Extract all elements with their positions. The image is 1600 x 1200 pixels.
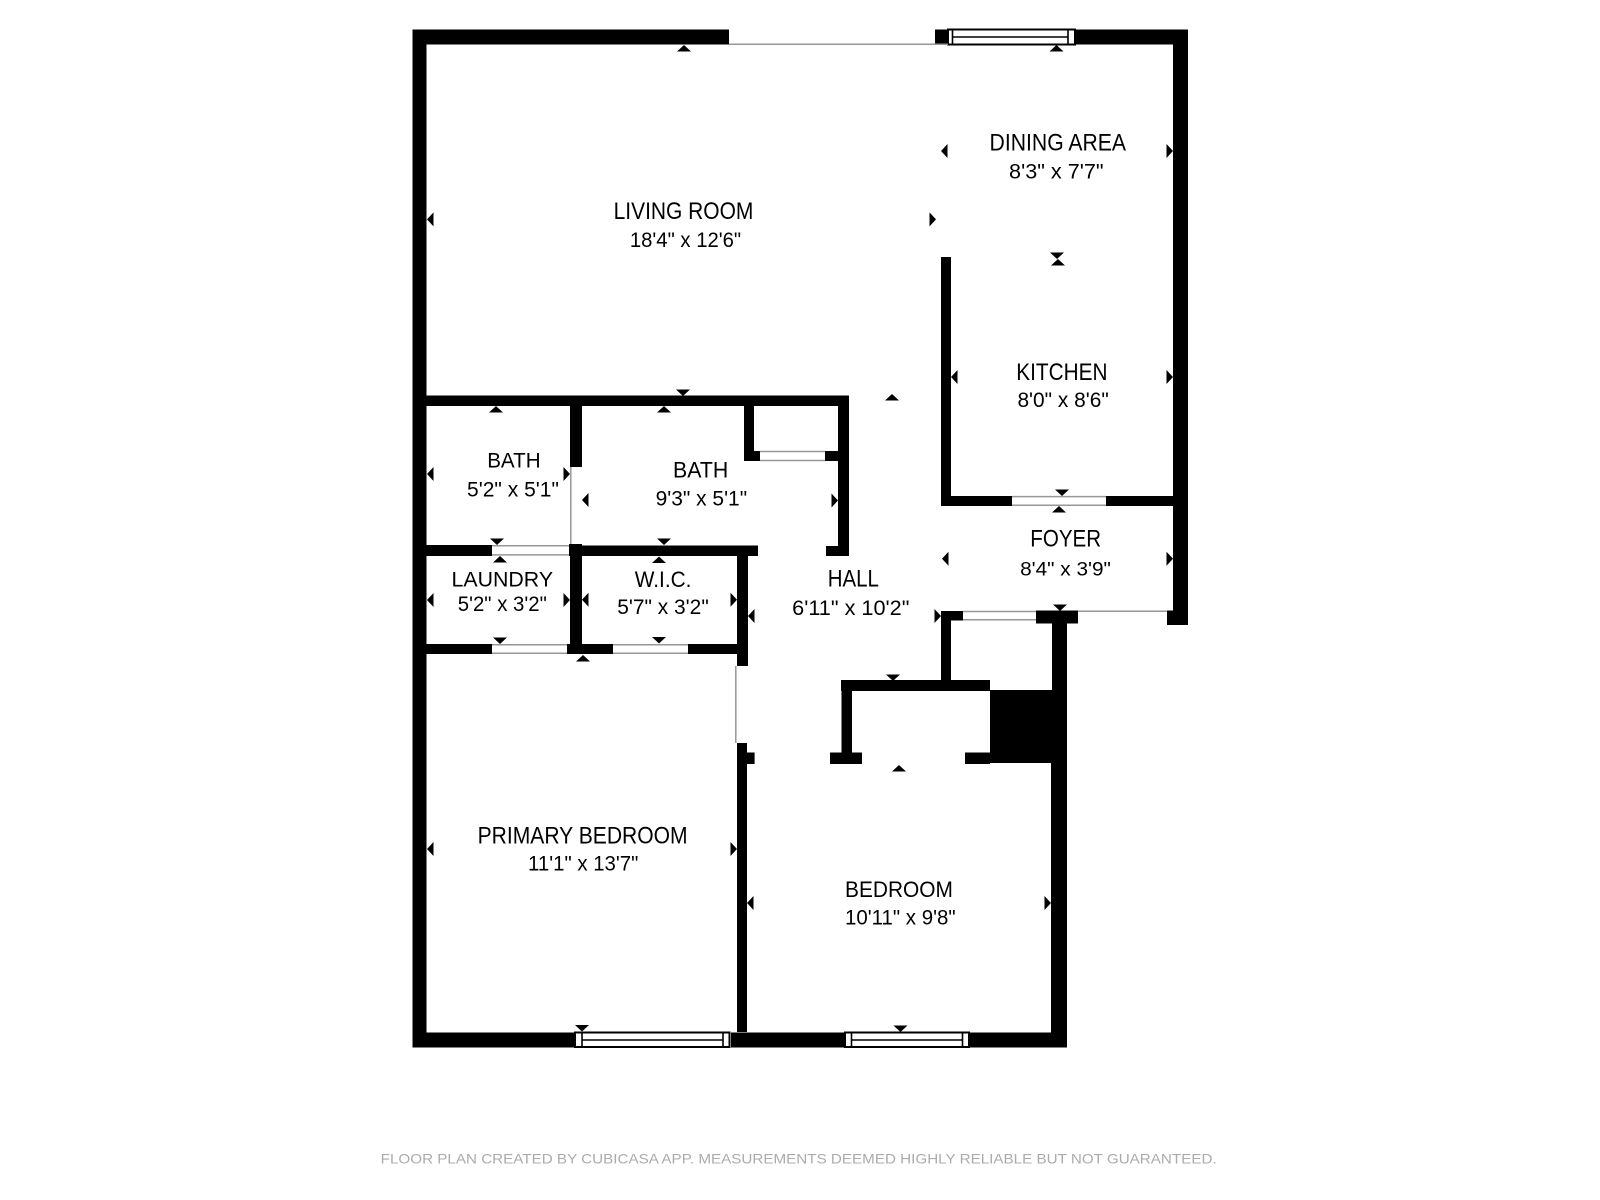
svg-text:18'4" x 12'6": 18'4" x 12'6" xyxy=(630,228,741,252)
svg-text:BATH: BATH xyxy=(487,450,540,473)
svg-text:PRIMARY BEDROOM: PRIMARY BEDROOM xyxy=(478,822,688,849)
svg-text:10'11" x 9'8": 10'11" x 9'8" xyxy=(845,906,956,929)
svg-text:HALL: HALL xyxy=(828,566,879,593)
svg-text:FOYER: FOYER xyxy=(1030,527,1101,553)
svg-text:FLOOR PLAN CREATED BY CUBICASA: FLOOR PLAN CREATED BY CUBICASA APP. MEAS… xyxy=(381,1151,1217,1167)
svg-text:BATH: BATH xyxy=(673,458,728,483)
svg-text:LAUNDRY: LAUNDRY xyxy=(452,568,554,591)
svg-text:5'2" x 5'1": 5'2" x 5'1" xyxy=(467,479,559,502)
svg-text:KITCHEN: KITCHEN xyxy=(1016,359,1107,386)
svg-text:6'11" x 10'2": 6'11" x 10'2" xyxy=(792,595,909,620)
svg-text:BEDROOM: BEDROOM xyxy=(845,877,953,902)
svg-text:DINING AREA: DINING AREA xyxy=(990,131,1127,157)
svg-text:8'3" x 7'7": 8'3" x 7'7" xyxy=(1009,160,1104,184)
svg-text:W.I.C.: W.I.C. xyxy=(635,567,692,592)
svg-text:11'1" x 13'7": 11'1" x 13'7" xyxy=(528,852,638,876)
svg-text:8'0" x 8'6": 8'0" x 8'6" xyxy=(1017,388,1108,412)
svg-text:LIVING ROOM: LIVING ROOM xyxy=(614,199,754,225)
svg-text:5'2" x 3'2": 5'2" x 3'2" xyxy=(458,593,547,616)
svg-text:8'4" x 3'9": 8'4" x 3'9" xyxy=(1020,558,1111,580)
svg-text:9'3" x 5'1": 9'3" x 5'1" xyxy=(656,487,748,510)
svg-text:5'7" x 3'2": 5'7" x 3'2" xyxy=(617,595,709,619)
